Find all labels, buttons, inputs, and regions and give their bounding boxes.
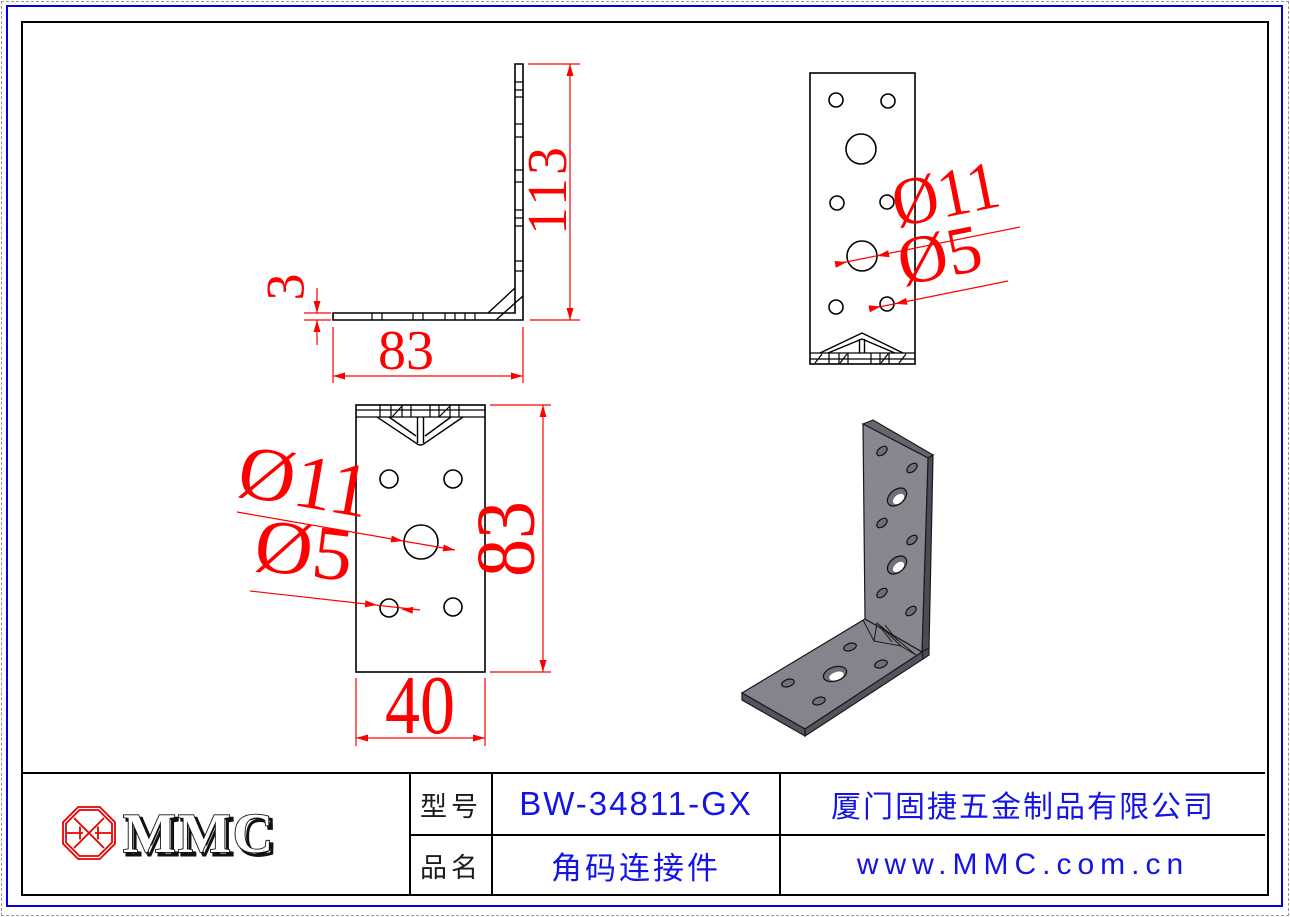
dim-front-small-hole: Ø5 (891, 209, 988, 300)
product-name-label: 品名 (411, 836, 491, 894)
side-view-outline (333, 64, 523, 320)
dim-side-width: 83 (378, 320, 434, 382)
title-block: MMC MMC 型号 BW-34811-GX 厦门固捷五金制品有限公司 品名 角… (23, 772, 1265, 894)
side-view (333, 64, 523, 320)
company-website: www.MMC.com.cn (781, 836, 1265, 894)
dim-side-thickness: 3 (255, 274, 315, 301)
mmc-logo-text: MMC (123, 803, 275, 865)
product-name-value: 角码连接件 (493, 836, 779, 894)
dim-plan-small-hole: Ø5 (250, 503, 358, 598)
mmc-logo-emblem-icon (63, 807, 115, 859)
cad-drawing-page: { "drawing": { "part": "L angle bracket … (0, 0, 1290, 917)
dim-plan-width: 40 (385, 659, 455, 752)
mmc-logo: MMC MMC (61, 799, 371, 869)
model-value: BW-34811-GX (493, 774, 779, 834)
dim-plan-length: 83 (459, 501, 552, 577)
iso-view (742, 420, 933, 736)
dim-side-height: 113 (517, 147, 579, 235)
model-label: 型号 (411, 774, 491, 834)
iso-vertical-plate-face (863, 424, 928, 652)
logo-cell: MMC MMC (23, 774, 409, 894)
company-name: 厦门固捷五金制品有限公司 (781, 774, 1265, 834)
